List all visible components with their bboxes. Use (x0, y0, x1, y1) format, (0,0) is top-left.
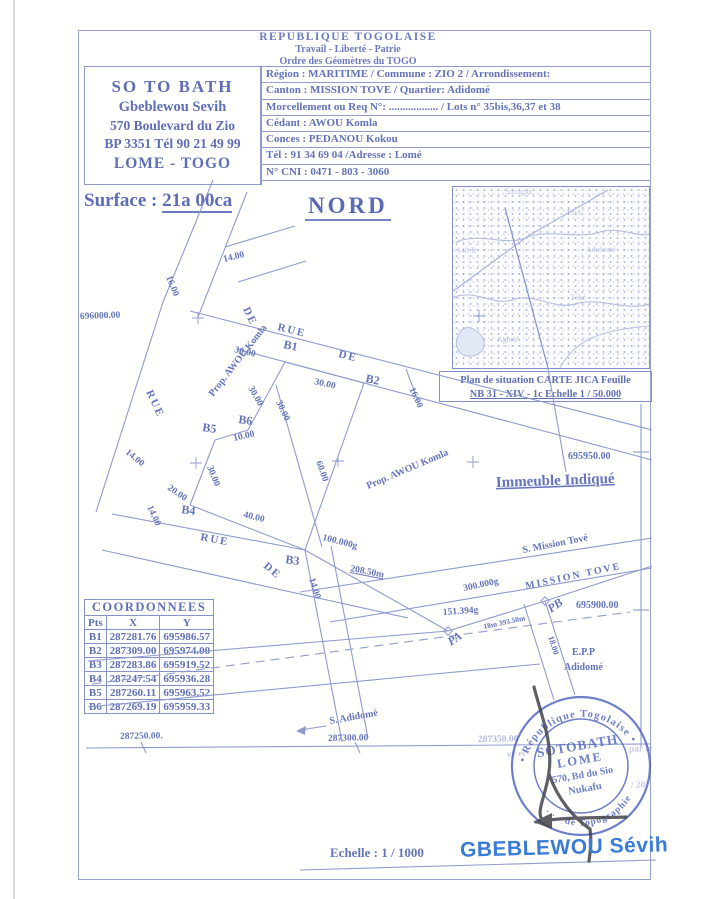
coord-cell: 287281.76 (106, 630, 160, 644)
surveyor-letterhead: SO TO BATH Gbeblewou Sevih 570 Boulevard… (84, 66, 261, 185)
coord-col-header: X (106, 616, 160, 630)
coord-cell: 287260.11 (106, 686, 160, 700)
coord-cell: B2 (85, 644, 107, 658)
coord-cell: 287247.54 (106, 672, 160, 686)
firm-address: 570 Boulevard du Zio (85, 118, 260, 134)
map-caption-line2: NB 31 - XIV - 1c Echelle 1 / 50.000 (440, 388, 651, 402)
scanned-survey-document: REPUBLIQUE TOGOLAISE Travail - Liberté -… (0, 0, 720, 899)
info-row: Tél : 91 34 69 04 /Adresse : Lomé (262, 148, 650, 164)
coord-cell: B1 (85, 630, 107, 644)
coord-cell: 695974.00 (160, 644, 214, 658)
surveyor-name: Gbeblewou Sevih (85, 99, 260, 116)
coord-cell: 287283.86 (106, 658, 160, 672)
map-caption-line1: Plan de situation CARTE JICA Feuille (440, 374, 651, 388)
coord-col-header: Y (160, 616, 214, 630)
info-row: Région : MARITIME / Commune : ZIO 2 / Ar… (262, 67, 650, 83)
parcel-info-table: Région : MARITIME / Commune : ZIO 2 / Ar… (261, 66, 650, 185)
coord-cell: B4 (85, 672, 107, 686)
info-row: Cédant : AWOU Komla (262, 116, 650, 132)
coord-cell: 695963.52 (160, 686, 214, 700)
coord-cell: 695986.57 (160, 630, 214, 644)
coord-col-header: Pts (85, 616, 107, 630)
coord-cell: 287269.19 (106, 700, 160, 714)
firm-name: SO TO BATH (85, 77, 260, 97)
coord-row: B5287260.11695963.52 (85, 686, 214, 700)
coord-row: B2287309.00695974.00 (85, 644, 214, 658)
situation-map-inset (452, 186, 650, 369)
coord-row: B1287281.76695986.57 (85, 630, 214, 644)
coord-cell: B3 (85, 658, 107, 672)
coord-cell: 287309.00 (106, 644, 160, 658)
coord-cell: 695936.28 (160, 672, 214, 686)
coordinates-table-headers: PtsXY (85, 616, 214, 630)
coord-cell: B5 (85, 686, 107, 700)
north-label: NORD (305, 193, 391, 221)
surface-value: 21a 00ca (162, 190, 232, 213)
info-row: N° CNI : 0471 - 803 - 3060 (262, 165, 650, 181)
info-row: Conces : PEDANOU Kokou (262, 132, 650, 148)
firm-city: LOME - TOGO (85, 155, 260, 173)
surface-label: Surface : (84, 190, 162, 211)
info-row: Canton : MISSION TOVE / Quartier: Adidom… (262, 83, 650, 99)
coord-cell: 695919.52 (160, 658, 214, 672)
info-row: Morcellement ou Req N°: ................… (262, 100, 650, 116)
surface-area: Surface : 21a 00ca (84, 190, 232, 212)
coord-row: B3287283.86695919.52 (85, 658, 214, 672)
coordinates-table-title: COORDONNEES (85, 600, 214, 616)
coord-cell: B6 (85, 700, 107, 714)
country-title: REPUBLIQUE TOGOLAISE (233, 31, 463, 43)
situation-map-caption: Plan de situation CARTE JICA Feuille NB … (439, 371, 652, 402)
coord-row: B4287247.54695936.28 (85, 672, 214, 686)
document-header: REPUBLIQUE TOGOLAISE Travail - Liberté -… (233, 31, 463, 67)
coord-row: B6287269.19695959.33 (85, 700, 214, 714)
coordinates-table: COORDONNEES PtsXY B1287281.76695986.57B2… (84, 599, 214, 714)
country-motto: Travail - Liberté - Patrie (233, 44, 463, 55)
scan-edge-artifact (13, 0, 15, 899)
scale-label: Echelle : 1 / 1000 (330, 845, 424, 861)
firm-phone: BP 3351 Tél 90 21 49 99 (85, 136, 260, 152)
coord-cell: 695959.33 (160, 700, 214, 714)
